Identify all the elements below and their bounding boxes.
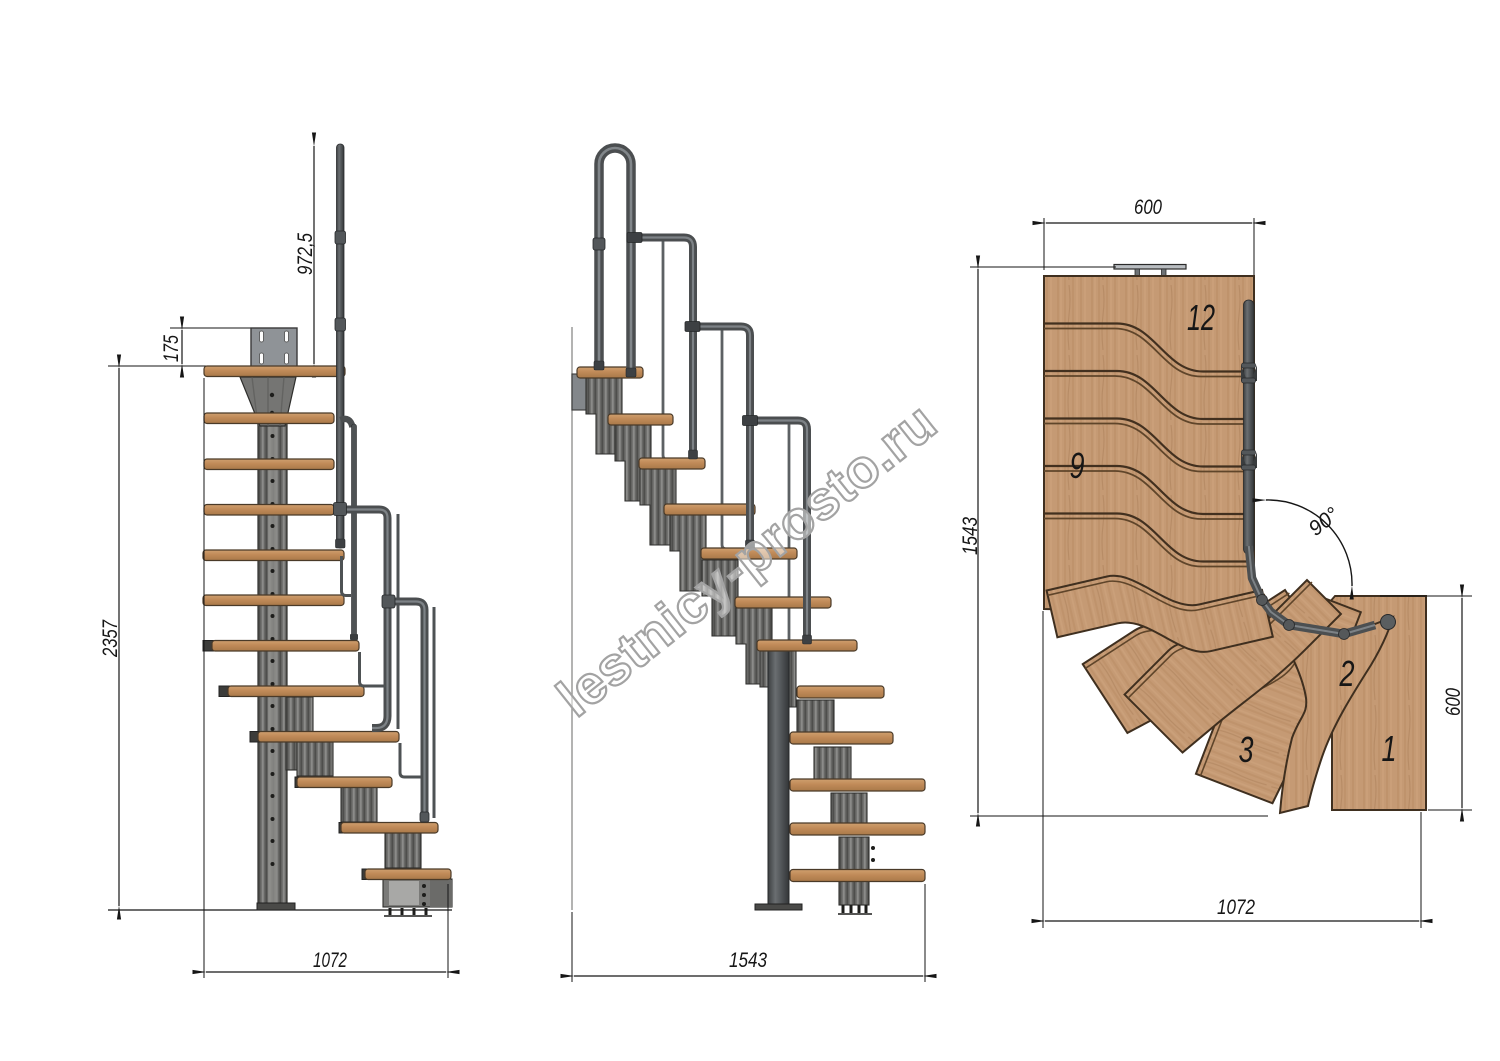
svg-text:175: 175: [160, 335, 183, 362]
svg-text:12: 12: [1187, 297, 1215, 338]
svg-text:600: 600: [1442, 688, 1465, 716]
svg-text:1543: 1543: [729, 949, 767, 972]
svg-text:3: 3: [1239, 729, 1254, 770]
svg-text:1072: 1072: [1217, 896, 1255, 919]
svg-text:600: 600: [1134, 196, 1162, 219]
svg-text:9: 9: [1070, 445, 1085, 486]
svg-text:1072: 1072: [313, 949, 347, 972]
svg-text:1: 1: [1382, 728, 1397, 769]
svg-text:2357: 2357: [99, 619, 122, 658]
svg-text:972,5: 972,5: [294, 233, 317, 275]
svg-text:2: 2: [1339, 653, 1355, 694]
svg-text:1543: 1543: [959, 517, 982, 555]
